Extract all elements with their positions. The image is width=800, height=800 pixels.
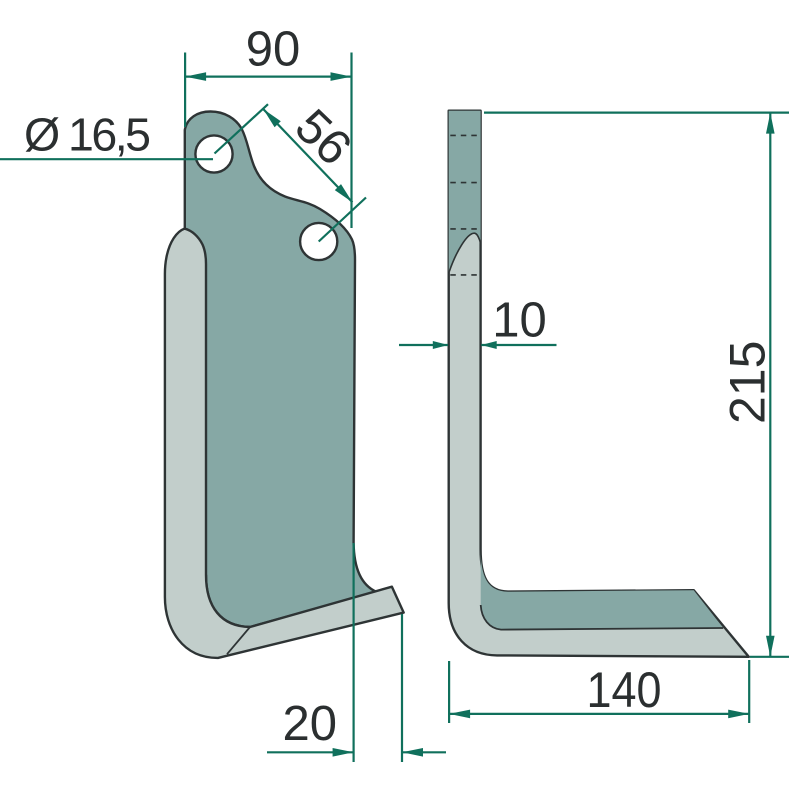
svg-text:90: 90	[246, 23, 301, 77]
svg-text:215: 215	[720, 341, 776, 424]
svg-text:10: 10	[492, 293, 547, 347]
svg-text:20: 20	[282, 697, 337, 751]
svg-text:140: 140	[587, 662, 662, 718]
svg-text:Ø 16,5: Ø 16,5	[24, 109, 151, 161]
